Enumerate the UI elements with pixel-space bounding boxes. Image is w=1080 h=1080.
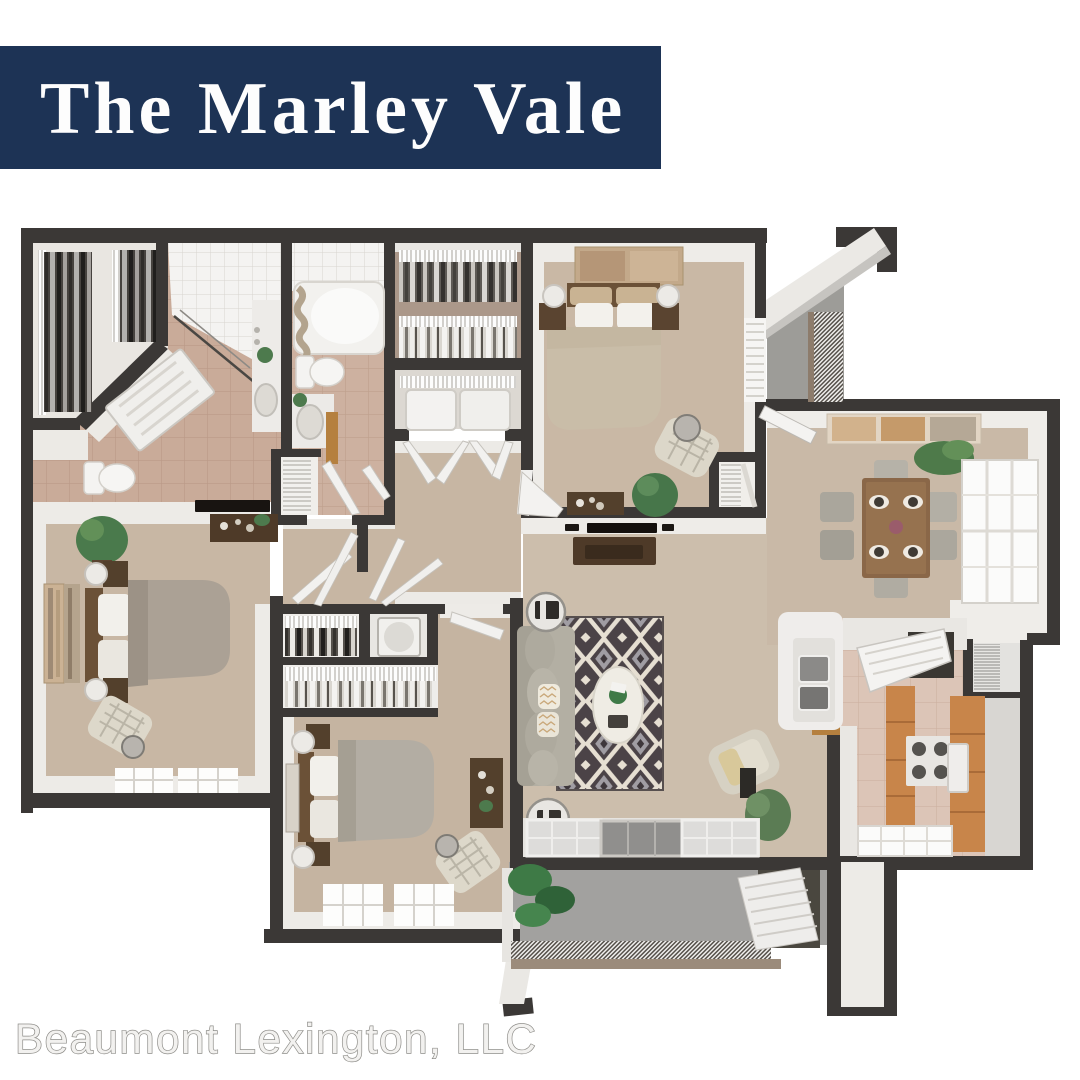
svg-text:The Marley Vale: The Marley Vale [40,68,626,150]
svg-text:Beaumont Lexington, LLC: Beaumont Lexington, LLC [15,1015,537,1062]
